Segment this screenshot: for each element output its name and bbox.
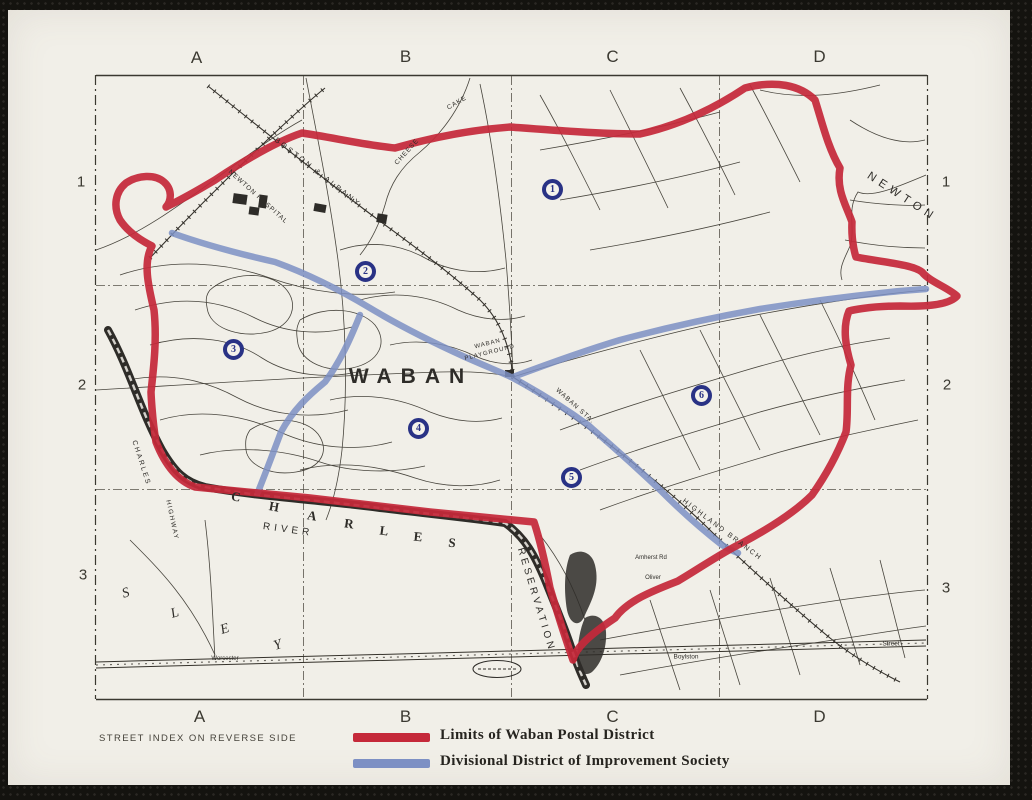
street-word-label: Street [882, 641, 899, 648]
grid-row-right-3: 3 [942, 580, 950, 597]
legend-blue-label: Divisional District of Improvement Socie… [440, 753, 730, 770]
district-marker-number: 6 [699, 390, 704, 401]
postal-district-boundary [116, 84, 957, 660]
grid-col-bottom-d: D [813, 707, 826, 727]
worcester-street-label: Worcester [211, 656, 238, 662]
amherst-road-label: Amherst Rd [635, 555, 667, 561]
grid-row-left-2: 2 [78, 377, 86, 394]
grid-row-left-3: 3 [79, 567, 87, 584]
district-marker-6: 6 [691, 385, 712, 406]
oliver-street-label: Oliver [645, 575, 661, 581]
grid-col-bottom-b: B [400, 707, 412, 727]
map-drawing [0, 0, 1032, 800]
legend-red-label: Limits of Waban Postal District [440, 727, 655, 744]
map-stage: A B C D A B C D 1 2 3 1 2 3 WABAN NEWTON… [0, 0, 1032, 800]
boylston-street-label: Boylston [674, 654, 699, 661]
grid-row-right-2: 2 [943, 377, 951, 394]
district-marker-5: 5 [561, 467, 582, 488]
district-marker-1: 1 [542, 179, 563, 200]
district-marker-number: 4 [416, 423, 421, 434]
district-marker-number: 5 [569, 472, 574, 483]
district-marker-2: 2 [355, 261, 376, 282]
waban-label: WABAN [349, 365, 473, 389]
district-marker-4: 4 [408, 418, 429, 439]
grid-col-top-c: C [606, 47, 619, 67]
street-index-note: STREET INDEX ON REVERSE SIDE [99, 733, 297, 744]
grid-row-left-1: 1 [77, 174, 85, 191]
grid-col-top-d: D [813, 47, 826, 67]
legend-red-swatch [353, 733, 430, 742]
charles-river-letter: L [379, 522, 390, 539]
legend-blue-swatch [353, 759, 430, 768]
district-marker-number: 2 [363, 266, 368, 277]
grid-col-bottom-c: C [606, 707, 619, 727]
grid-col-top-a: A [191, 48, 203, 68]
grid-col-top-b: B [400, 47, 412, 67]
grid-col-bottom-a: A [194, 707, 206, 727]
district-marker-3: 3 [223, 339, 244, 360]
district-marker-number: 1 [550, 184, 555, 195]
grid-row-right-1: 1 [942, 174, 950, 191]
charles-river-letter: E [413, 529, 423, 546]
district-marker-number: 3 [231, 344, 236, 355]
